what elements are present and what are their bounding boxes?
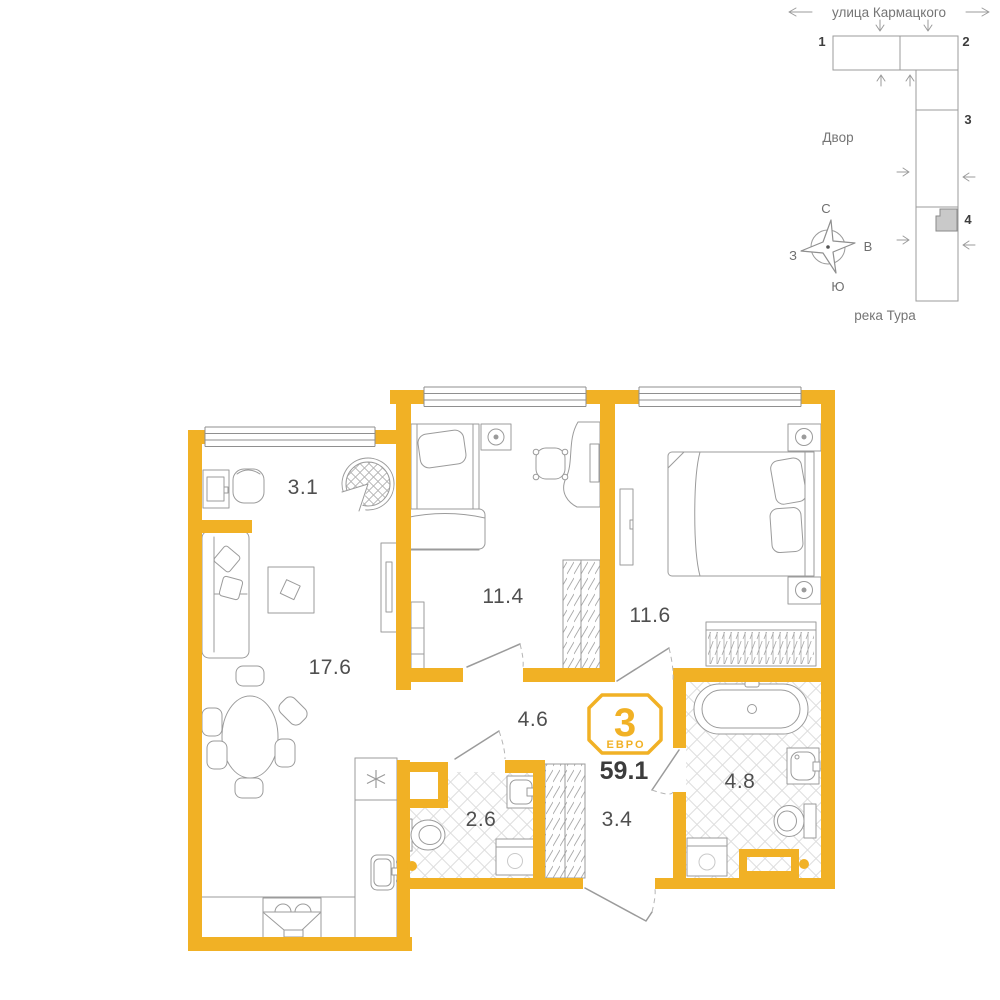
washing-machine [687,838,727,876]
site-plan: улица Кармацкого 1 2 3 4 Двор река Тура [789,5,989,323]
loggia-desk-chair [233,469,264,503]
toilet [774,804,816,838]
room-label-hallway: 4.6 [518,708,549,731]
bathtub [694,681,808,734]
loggia-desk [203,470,229,508]
stove [263,898,321,938]
plan-canvas: улица Кармацкого 1 2 3 4 Двор река Тура [0,0,1000,1000]
sofa-pillow [219,576,243,600]
floor-plan-page: улица Кармацкого 1 2 3 4 Двор река Тура [0,0,1000,1000]
dining-chair [236,666,264,686]
living-console-unit [381,543,397,632]
headboard [805,452,814,576]
bed-pillow [770,507,804,553]
washing-machine [496,839,535,875]
single-bed [405,424,485,550]
bed-pillow [417,429,467,469]
room-label-corridor: 3.4 [602,808,633,831]
compass-center-dot [826,245,830,249]
compass-label-west: З [789,248,797,263]
dining-table [222,696,278,778]
street-arrow-right-icon [966,8,989,16]
room-label-loggia: 3.1 [288,476,319,499]
entrance-door [585,888,655,921]
wardrobe-bedroom1 [563,560,600,680]
bedroom1-desk [564,422,600,507]
compass-label-north: С [821,201,830,216]
total-area-label: 59.1 [600,757,649,785]
window-bedroom1 [424,386,586,407]
papasan-chair [341,458,394,512]
section-label-2: 2 [962,34,969,49]
room-label-bathroom: 4.8 [725,770,756,793]
dining-chair [202,708,222,736]
bedroom1-desk-chair [533,448,568,480]
dining-chair [235,778,263,798]
badge-plan-type: ЕВРО [606,739,645,751]
door-dot [407,861,417,871]
room-label-bedroom2: 11.6 [629,604,670,627]
building-tower [916,70,958,301]
nightstand [788,424,821,451]
window-bedroom2 [639,386,801,407]
compass: С В Ю З [789,201,872,294]
wardrobe-bedroom2 [706,622,816,666]
wardrobe-corridor [545,764,585,878]
street-label: улица Кармацкого [832,5,946,20]
room-label-living: 17.6 [309,656,352,679]
dining-chair [276,694,310,728]
bed-blanket [405,509,485,549]
dining-chair [275,739,295,767]
sofa [202,531,249,658]
plan-type-badge: 3 ЕВРО [589,695,661,753]
dining-chair [207,741,227,769]
building-bar [833,36,958,70]
section-label-3: 3 [964,112,971,127]
room-label-wc: 2.6 [466,808,497,831]
apartment-plan: 3.1 17.6 11.4 11.6 4.6 2.6 3.4 4.8 3 ЕВР… [188,386,835,951]
tv-stand [620,489,633,565]
compass-label-east: В [864,239,873,254]
door-bedroom2 [617,648,673,681]
street-arrow-left-icon [789,8,812,16]
door-wc [455,731,505,759]
fridge [355,758,397,800]
courtyard-label: Двор [822,130,853,145]
door-bedroom1 [467,644,523,667]
window-living [205,426,375,447]
door-bathroom [652,750,679,794]
room-label-bedroom1: 11.4 [482,585,523,608]
coffee-table [268,567,314,613]
double-bed [668,452,814,576]
compass-label-south: Ю [831,279,844,294]
bathroom-sink [787,748,820,784]
section-label-1: 1 [818,34,825,49]
section-label-4: 4 [964,212,972,227]
wc-sink [507,776,535,808]
nightstand [788,577,821,604]
building-outline [833,36,958,301]
door-dot [799,859,809,869]
vent-shaft [400,762,448,808]
river-label: река Тура [854,308,916,323]
nightstand [481,424,511,450]
